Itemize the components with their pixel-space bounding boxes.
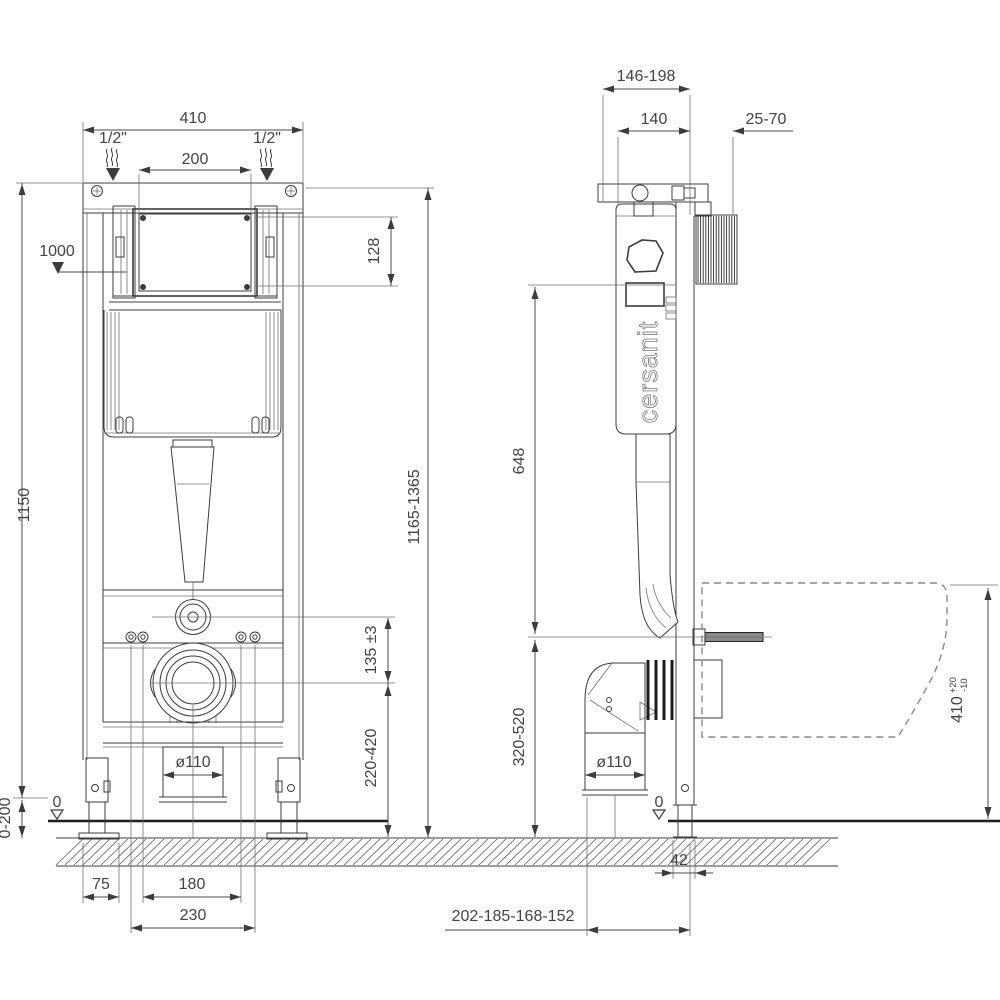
wall-hatch-pattern — [698, 216, 734, 283]
dim-outlet-height: 220-420 — [363, 729, 380, 788]
water-inlet-left — [106, 148, 120, 181]
drain-pipe-side — [582, 733, 648, 838]
dim-bowl-height: 410+20-10 — [948, 677, 970, 723]
ribbed-coupling — [648, 660, 672, 720]
dim-zero-side: 0 — [655, 794, 664, 811]
flush-plate-window — [113, 206, 277, 298]
screw-icon — [92, 186, 103, 197]
flush-pipe-side — [636, 434, 678, 638]
dim-outlet-range: 320-520 — [511, 708, 528, 767]
cistern-tank-side: cersanit — [616, 202, 676, 434]
floor-hatch-pattern — [56, 839, 830, 865]
adjustable-foot-right — [267, 758, 307, 839]
technical-drawing-page: 410 1/2" 1/2" 200 1000 128 1150 1165-136… — [0, 0, 1000, 1000]
dim-outlet-depths: 202-185-168-152 — [452, 908, 575, 925]
dim-drain-diameter-side: ø110 — [596, 754, 631, 771]
flush-pipe-front — [171, 440, 214, 602]
drain-pipe-front — [159, 705, 227, 838]
dim-width: 410 — [180, 110, 207, 127]
screw-icon — [286, 186, 297, 197]
floor-section — [48, 821, 1000, 866]
dim-foot-depth: 42 — [670, 852, 688, 869]
dim-wall-distance: 25-70 — [746, 111, 787, 128]
frame-rail-side — [673, 202, 697, 837]
dim-water-left: 1/2" — [99, 130, 127, 147]
dim-fixing-spacing: 230 — [180, 907, 207, 924]
cistern-tank-front — [104, 310, 281, 437]
side-view: cersanit — [445, 68, 998, 936]
extension-lines-side — [528, 95, 998, 936]
toilet-bowl-outline — [702, 583, 947, 737]
zero-level-marker-front — [51, 810, 63, 819]
dim-outlet-offset: 135 ±3 — [363, 625, 380, 674]
wall-section — [696, 215, 737, 284]
dim-depth-range: 146-198 — [617, 68, 676, 85]
dim-plate-width: 200 — [182, 151, 209, 168]
drain-elbow — [585, 660, 672, 733]
dim-frame-height: 1150 — [16, 488, 33, 523]
dim-inlet-height: 648 — [511, 448, 528, 475]
adjustable-foot-left — [79, 758, 119, 839]
dim-zero-front: 0 — [53, 794, 62, 811]
dim-plate-height: 128 — [366, 238, 383, 265]
dim-floor-range: 0-200 — [0, 797, 14, 838]
front-view: 410 1/2" 1/2" 200 1000 128 1150 1165-136… — [0, 110, 434, 933]
brand-logo: cersanit — [633, 321, 663, 424]
dim-drain-diameter-front: ø110 — [175, 754, 210, 771]
dim-button-height: 1000 — [39, 243, 75, 260]
dim-total-height: 1165-1365 — [406, 469, 423, 544]
dim-frame-depth: 140 — [641, 111, 668, 128]
wall-anchor-bracket — [694, 660, 722, 718]
dim-bolt-spacing: 180 — [179, 876, 206, 893]
wc-frame-installation-diagram: 410 1/2" 1/2" 200 1000 128 1150 1165-136… — [0, 0, 1000, 1000]
zero-level-marker-side — [653, 810, 665, 819]
dim-water-right: 1/2" — [253, 130, 281, 147]
dim-foot-offset: 75 — [92, 876, 110, 893]
water-inlet-right — [260, 148, 274, 181]
